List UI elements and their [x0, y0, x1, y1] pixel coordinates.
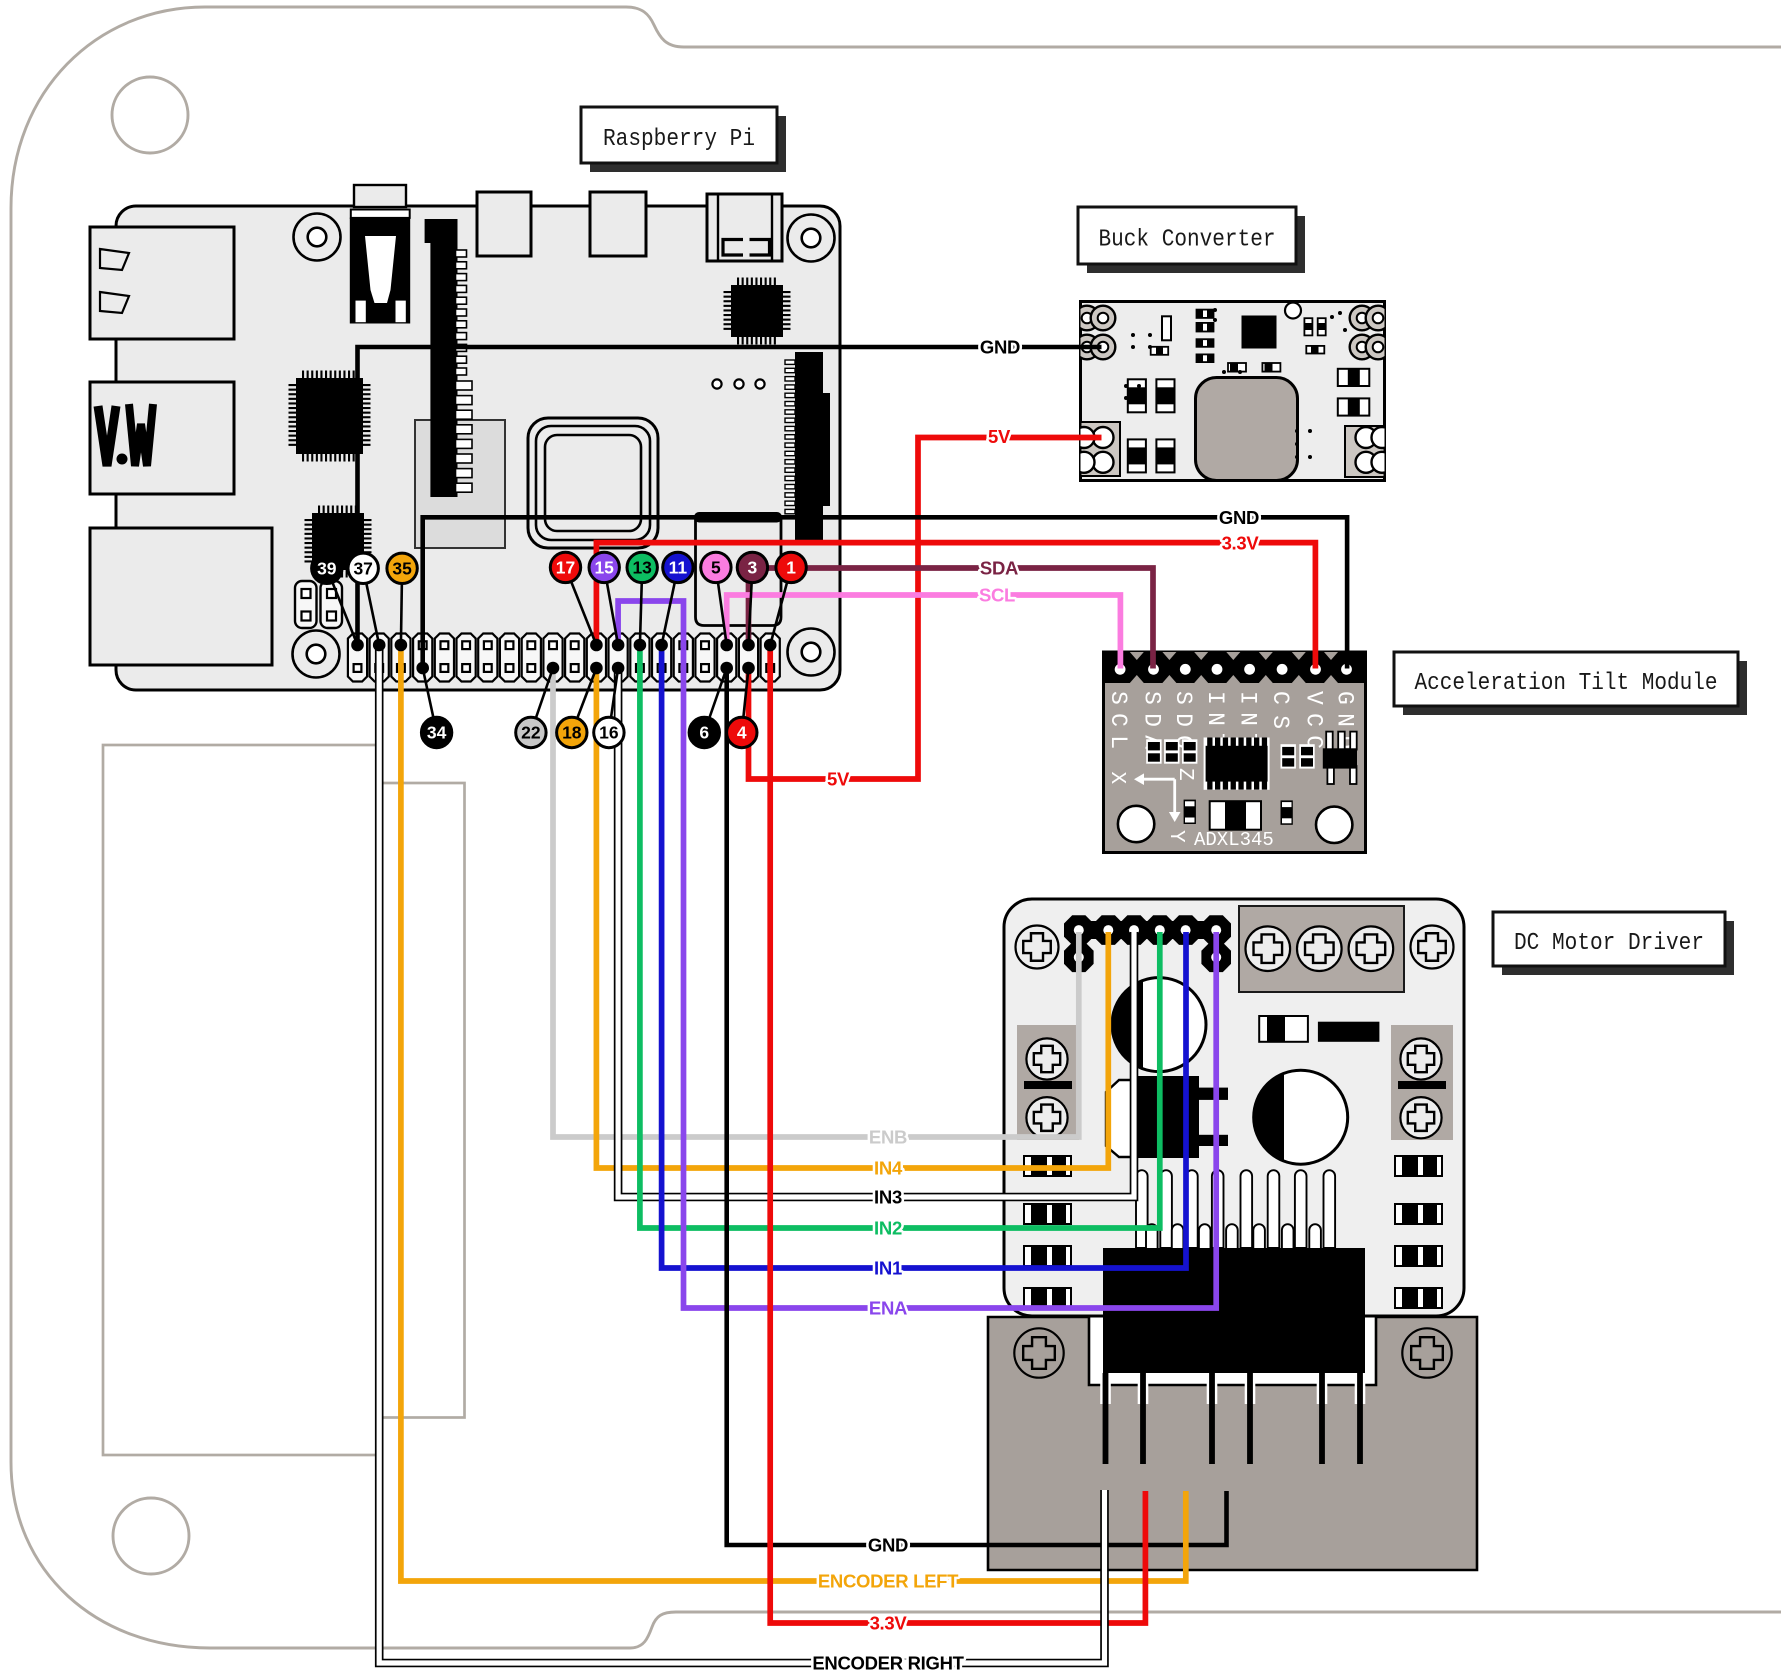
svg-text:Y: Y	[1164, 830, 1187, 843]
svg-text:X: X	[1105, 772, 1128, 785]
svg-text:37: 37	[353, 558, 372, 578]
svg-text:IN4: IN4	[874, 1158, 903, 1179]
svg-text:SDA: SDA	[980, 558, 1018, 579]
svg-text:3.3V: 3.3V	[1222, 532, 1260, 553]
svg-text:15: 15	[594, 558, 614, 578]
svg-text:DC Motor Driver: DC Motor Driver	[1514, 930, 1704, 957]
svg-text:5V: 5V	[827, 769, 850, 790]
svg-text:Acceleration Tilt Module: Acceleration Tilt Module	[1415, 670, 1718, 697]
svg-text:22: 22	[521, 723, 541, 743]
svg-text:ENB: ENB	[869, 1127, 907, 1148]
svg-text:11: 11	[669, 558, 688, 578]
svg-text:Raspberry Pi: Raspberry Pi	[603, 126, 755, 153]
svg-text:IN3: IN3	[874, 1187, 902, 1208]
svg-text:18: 18	[562, 723, 582, 743]
svg-text:GND: GND	[1219, 507, 1259, 528]
svg-text:3: 3	[748, 558, 758, 578]
svg-text:4: 4	[737, 723, 747, 743]
svg-text:39: 39	[317, 558, 337, 578]
svg-text:SCL: SCL	[979, 585, 1015, 606]
svg-text:13: 13	[632, 558, 652, 578]
svg-text:GND: GND	[868, 1535, 908, 1556]
svg-text:3.3V: 3.3V	[870, 1613, 908, 1634]
svg-text:35: 35	[392, 558, 412, 578]
svg-text:Buck Converter: Buck Converter	[1099, 227, 1276, 254]
svg-text:34: 34	[427, 723, 447, 743]
svg-text:IN1: IN1	[874, 1258, 902, 1279]
svg-text:5V: 5V	[988, 426, 1011, 447]
svg-text:ENCODER LEFT: ENCODER LEFT	[818, 1571, 959, 1592]
svg-text:IN2: IN2	[874, 1218, 902, 1239]
svg-text:ADXL345: ADXL345	[1194, 829, 1274, 851]
svg-text:SCL: SCL	[1105, 691, 1131, 749]
svg-text:17: 17	[556, 558, 575, 578]
svg-text:5: 5	[711, 558, 721, 578]
svg-text:ENCODER RIGHT: ENCODER RIGHT	[812, 1653, 964, 1674]
svg-text:16: 16	[599, 723, 619, 743]
svg-text:GND: GND	[980, 337, 1020, 358]
svg-text:Z: Z	[1173, 768, 1196, 781]
svg-text:VCC: VCC	[1300, 691, 1326, 749]
svg-text:1: 1	[786, 558, 796, 578]
svg-text:6: 6	[699, 723, 709, 743]
svg-text:ENA: ENA	[869, 1298, 907, 1319]
